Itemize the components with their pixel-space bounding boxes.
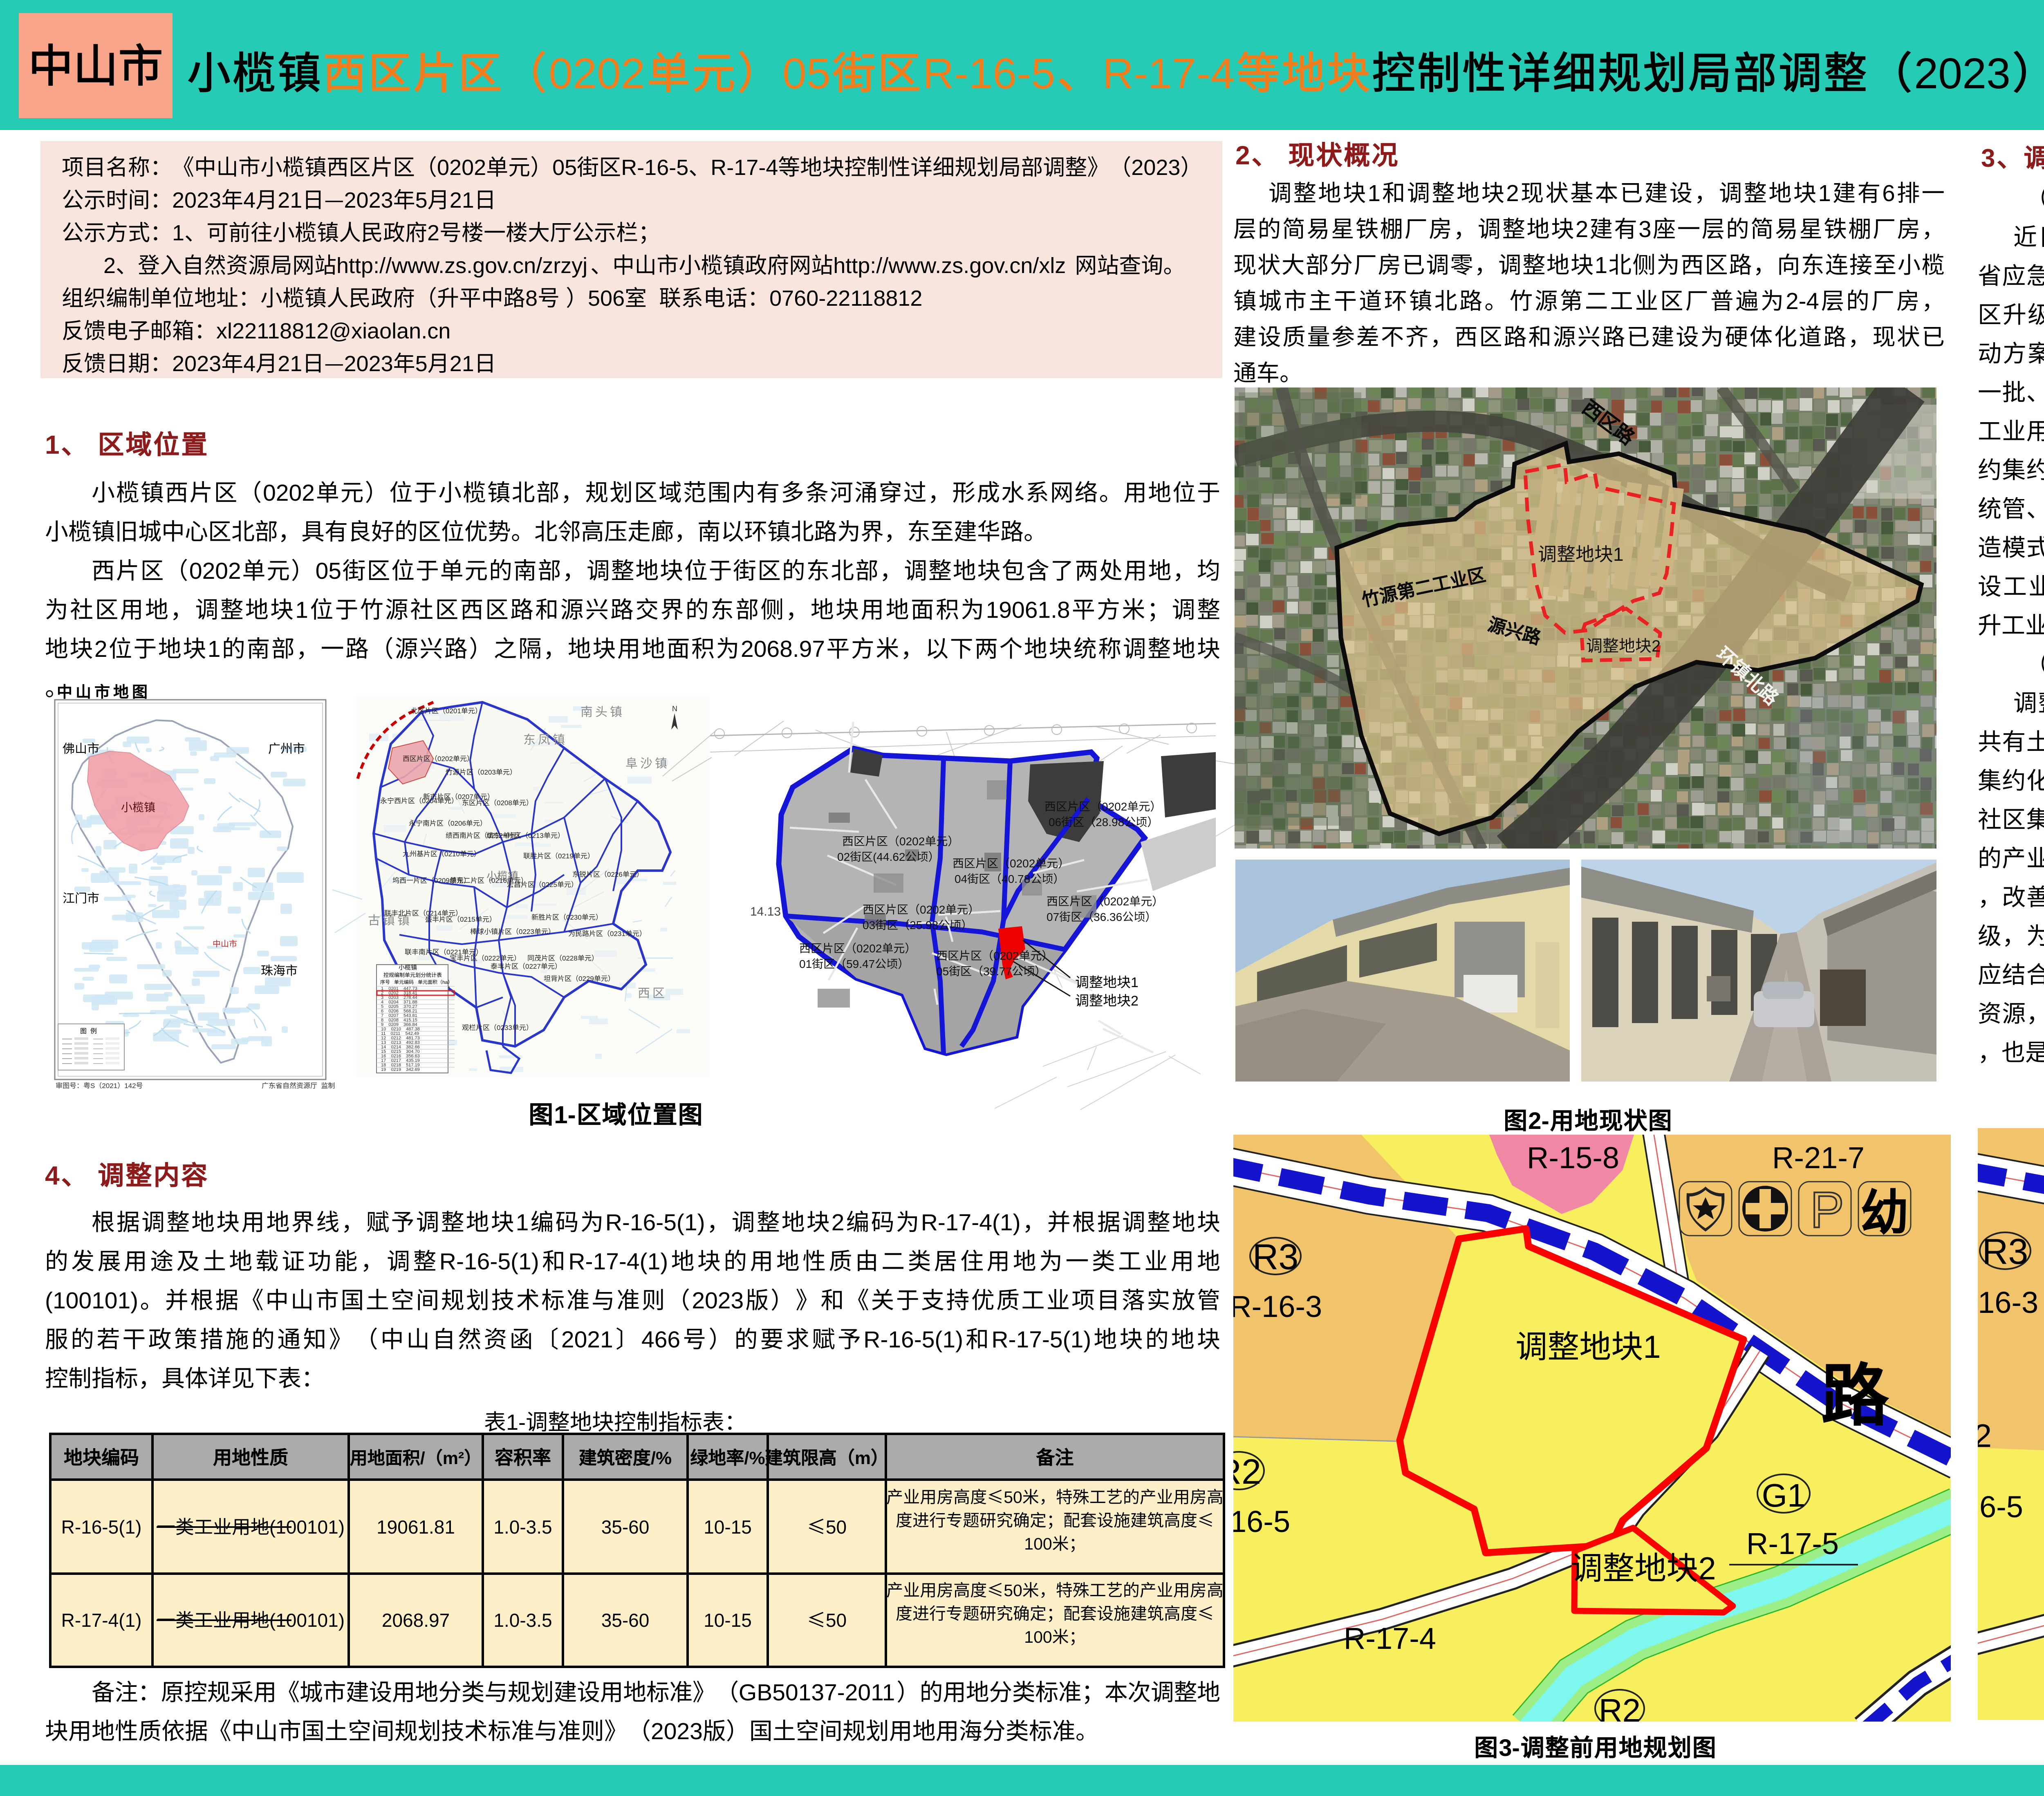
svg-text:0227: 0227	[525, 963, 541, 970]
svg-text:2023: 2023	[172, 352, 221, 376]
svg-text:2023: 2023	[172, 188, 221, 213]
svg-text:ha: ha	[442, 979, 448, 985]
svg-text:0226: 0226	[607, 871, 623, 878]
svg-text:1: 1	[1613, 544, 1624, 565]
svg-text:0202: 0202	[993, 950, 1019, 962]
svg-text:2: 2	[1576, 216, 1588, 242]
svg-text:2: 2	[1235, 141, 1250, 170]
svg-text:142: 142	[124, 1082, 136, 1090]
svg-text:2023: 2023	[1914, 49, 2010, 98]
svg-text:1: 1	[295, 597, 308, 623]
svg-text:39.77: 39.77	[983, 965, 1012, 978]
svg-text:R-17-4(1): R-17-4(1)	[568, 1249, 668, 1275]
svg-text:0213: 0213	[528, 832, 544, 840]
svg-text:8: 8	[525, 286, 538, 311]
svg-text:R-16-5(1): R-16-5(1)	[61, 1516, 142, 1538]
svg-text:2-: 2-	[1528, 1108, 1549, 1134]
svg-text:/%: /%	[744, 1448, 765, 1468]
svg-text:0207: 0207	[458, 793, 473, 801]
svg-text:2: 2	[831, 1209, 845, 1236]
svg-text:0228: 0228	[562, 954, 578, 962]
svg-text:/: /	[420, 1449, 425, 1468]
svg-text:R-15-8: R-15-8	[1527, 1141, 1619, 1175]
svg-text:36.36: 36.36	[1094, 911, 1122, 923]
svg-text:02: 02	[837, 851, 850, 863]
svg-text:R-16-5: R-16-5	[923, 49, 1055, 98]
svg-text:06: 06	[1049, 816, 1061, 829]
svg-text:5: 5	[415, 188, 428, 213]
svg-text:0201: 0201	[446, 707, 461, 715]
svg-text:50: 50	[826, 1516, 847, 1538]
svg-text:2023: 2023	[344, 188, 393, 213]
svg-text:21: 21	[278, 352, 302, 376]
svg-text:2023: 2023	[344, 352, 393, 376]
svg-text:2023: 2023	[692, 1288, 744, 1314]
svg-text:1.0-3.5: 1.0-3.5	[493, 1610, 552, 1631]
svg-text:2-4: 2-4	[1786, 288, 1819, 314]
svg-text:R-16-5(1): R-16-5(1)	[863, 1327, 963, 1353]
svg-text:2: 2	[1652, 637, 1661, 655]
svg-text:0202: 0202	[899, 835, 925, 848]
svg-text:1-: 1-	[554, 1101, 576, 1129]
svg-text:S: S	[90, 1082, 95, 1090]
svg-text:4: 4	[243, 188, 255, 213]
svg-text:2: 2	[427, 221, 439, 245]
svg-text:0202: 0202	[189, 558, 241, 584]
svg-text:/%: /%	[651, 1448, 672, 1468]
svg-text:100: 100	[1024, 1534, 1052, 1553]
svg-text:21: 21	[450, 188, 474, 213]
svg-text:0230: 0230	[566, 914, 582, 921]
svg-text:R-17-5(1): R-17-5(1)	[991, 1327, 1091, 1353]
svg-text:2: 2	[1506, 180, 1519, 206]
svg-text:40.78: 40.78	[1002, 873, 1030, 885]
svg-text:2: 2	[1131, 993, 1139, 1009]
svg-text:0203: 0203	[480, 768, 496, 776]
svg-text:35-60: 35-60	[601, 1516, 650, 1538]
svg-text:19061.8: 19061.8	[986, 597, 1070, 623]
svg-text:2: 2	[103, 253, 116, 278]
svg-text:R-17-4(1): R-17-4(1)	[921, 1209, 1021, 1236]
svg-text:506: 506	[588, 286, 625, 311]
svg-text:0202: 0202	[1104, 895, 1129, 908]
svg-text:0202: 0202	[1102, 800, 1127, 813]
svg-text:R-17-4: R-17-4	[710, 155, 778, 180]
svg-text:2023: 2023	[651, 1718, 703, 1744]
svg-text:05: 05	[552, 155, 577, 180]
svg-text:(100101): (100101)	[45, 1288, 138, 1314]
svg-text:0209: 0209	[434, 877, 450, 885]
svg-text:R-17-4: R-17-4	[1102, 49, 1235, 98]
svg-text:0202: 0202	[263, 480, 315, 506]
svg-text:01: 01	[799, 958, 812, 970]
svg-text:5: 5	[415, 352, 428, 376]
svg-text:R3: R3	[1982, 1231, 2028, 1272]
svg-text:m²: m²	[443, 1449, 464, 1468]
svg-text:07: 07	[1047, 911, 1059, 923]
svg-text:2021: 2021	[561, 1327, 613, 1353]
svg-text:10-15: 10-15	[704, 1516, 752, 1538]
svg-text:6: 6	[1882, 180, 1895, 206]
svg-text:R-17-4(1): R-17-4(1)	[61, 1610, 142, 1631]
svg-text:0208: 0208	[497, 799, 512, 807]
svg-text:1-: 1-	[506, 1410, 526, 1435]
svg-text:http://www.zs.gov.cn/zrzyj: http://www.zs.gov.cn/zrzyj	[336, 253, 587, 278]
svg-text:m: m	[855, 1448, 871, 1468]
svg-text:59.47: 59.47	[846, 958, 875, 970]
svg-text:0210: 0210	[444, 850, 460, 858]
svg-text:35-60: 35-60	[601, 1610, 650, 1631]
svg-text:2: 2	[94, 636, 108, 662]
svg-text:0229: 0229	[578, 975, 594, 983]
svg-text:N: N	[672, 705, 677, 713]
svg-text:0215: 0215	[460, 916, 475, 923]
svg-text:xl22118812@xiaolan.cn: xl22118812@xiaolan.cn	[216, 319, 450, 343]
svg-text:21: 21	[278, 188, 302, 213]
svg-text:R-16-3: R-16-3	[1230, 1290, 1322, 1323]
svg-text:0202: 0202	[549, 49, 645, 98]
svg-text:0202: 0202	[437, 755, 453, 763]
svg-text:0202: 0202	[437, 155, 486, 180]
svg-text:GB50137-2011: GB50137-2011	[739, 1680, 895, 1706]
svg-text:16-5: 16-5	[1230, 1505, 1290, 1538]
svg-text:2068.97: 2068.97	[382, 1610, 450, 1631]
svg-text:0222: 0222	[484, 954, 500, 962]
svg-text:G1: G1	[1762, 1477, 1806, 1514]
svg-text:0214: 0214	[426, 909, 442, 917]
svg-text:4: 4	[45, 1161, 60, 1190]
svg-text:1.0-3.5: 1.0-3.5	[493, 1516, 552, 1538]
svg-text:1: 1	[1131, 975, 1139, 990]
svg-text:03: 03	[863, 919, 875, 932]
svg-text:05: 05	[936, 965, 949, 978]
svg-text:2021: 2021	[102, 1082, 117, 1090]
svg-text:0233: 0233	[497, 1024, 512, 1032]
svg-text:100: 100	[1024, 1628, 1052, 1646]
svg-text:0231: 0231	[610, 930, 625, 938]
svg-text:0202: 0202	[1010, 857, 1035, 870]
svg-text:2068.97: 2068.97	[741, 636, 825, 662]
svg-text:1: 1	[172, 221, 184, 245]
svg-text:50: 50	[1004, 1488, 1022, 1507]
svg-text:R-17-5: R-17-5	[1746, 1527, 1839, 1561]
svg-text:6-5: 6-5	[1979, 1490, 2023, 1524]
svg-text:R-16-5: R-16-5	[621, 155, 688, 180]
svg-text:R-21-7: R-21-7	[1772, 1141, 1865, 1175]
svg-text:2: 2	[1698, 1550, 1716, 1586]
svg-text:0221: 0221	[446, 948, 462, 956]
svg-text:0202: 0202	[920, 903, 945, 916]
svg-text:R-16-5(1): R-16-5(1)	[605, 1209, 705, 1236]
svg-text:0204: 0204	[422, 797, 437, 805]
svg-text:0219: 0219	[558, 852, 574, 860]
svg-text:04: 04	[955, 873, 967, 885]
svg-text:0223: 0223	[519, 928, 534, 936]
svg-text:0216: 0216	[491, 877, 507, 885]
svg-text:14.13: 14.13	[750, 905, 781, 918]
svg-text:50: 50	[1004, 1581, 1022, 1600]
svg-text:466: 466	[641, 1327, 680, 1353]
svg-text:http://www.zs.gov.cn/xlz: http://www.zs.gov.cn/xlz	[833, 253, 1072, 278]
svg-text:28.98: 28.98	[1096, 816, 1124, 829]
svg-text:3: 3	[1981, 144, 1995, 172]
svg-text:0225: 0225	[542, 881, 557, 889]
svg-text:R3: R3	[1253, 1236, 1299, 1277]
svg-text:0760-22118812: 0760-22118812	[769, 286, 922, 311]
svg-text:3-: 3-	[1499, 1735, 1520, 1761]
svg-text:(44.62: (44.62	[873, 851, 905, 863]
svg-text:0202: 0202	[856, 942, 882, 955]
svg-text:1: 1	[1643, 1329, 1661, 1365]
svg-text:10-15: 10-15	[704, 1610, 752, 1631]
svg-text:50: 50	[826, 1610, 847, 1631]
svg-text:R-16-5(1): R-16-5(1)	[439, 1249, 539, 1275]
svg-text:1: 1	[208, 636, 221, 662]
svg-text:05: 05	[782, 49, 831, 98]
svg-text:1: 1	[1818, 180, 1831, 206]
svg-text:4: 4	[243, 352, 255, 376]
svg-text:R-17-4: R-17-4	[1344, 1621, 1436, 1655]
svg-text:2023: 2023	[1131, 155, 1180, 180]
svg-text:1: 1	[1595, 252, 1607, 278]
svg-text:19061.81: 19061.81	[377, 1516, 455, 1538]
svg-text:25.98: 25.98	[910, 919, 938, 932]
svg-text:1: 1	[516, 1209, 529, 1236]
svg-text:05: 05	[316, 558, 341, 584]
svg-text:21: 21	[450, 352, 474, 376]
svg-text:1: 1	[1368, 180, 1381, 206]
svg-text:0206: 0206	[450, 820, 466, 827]
svg-text:3: 3	[1638, 216, 1651, 242]
svg-text:19 0219 342.69: 19 0219 342.69	[381, 1067, 420, 1072]
svg-text:1: 1	[45, 430, 60, 459]
